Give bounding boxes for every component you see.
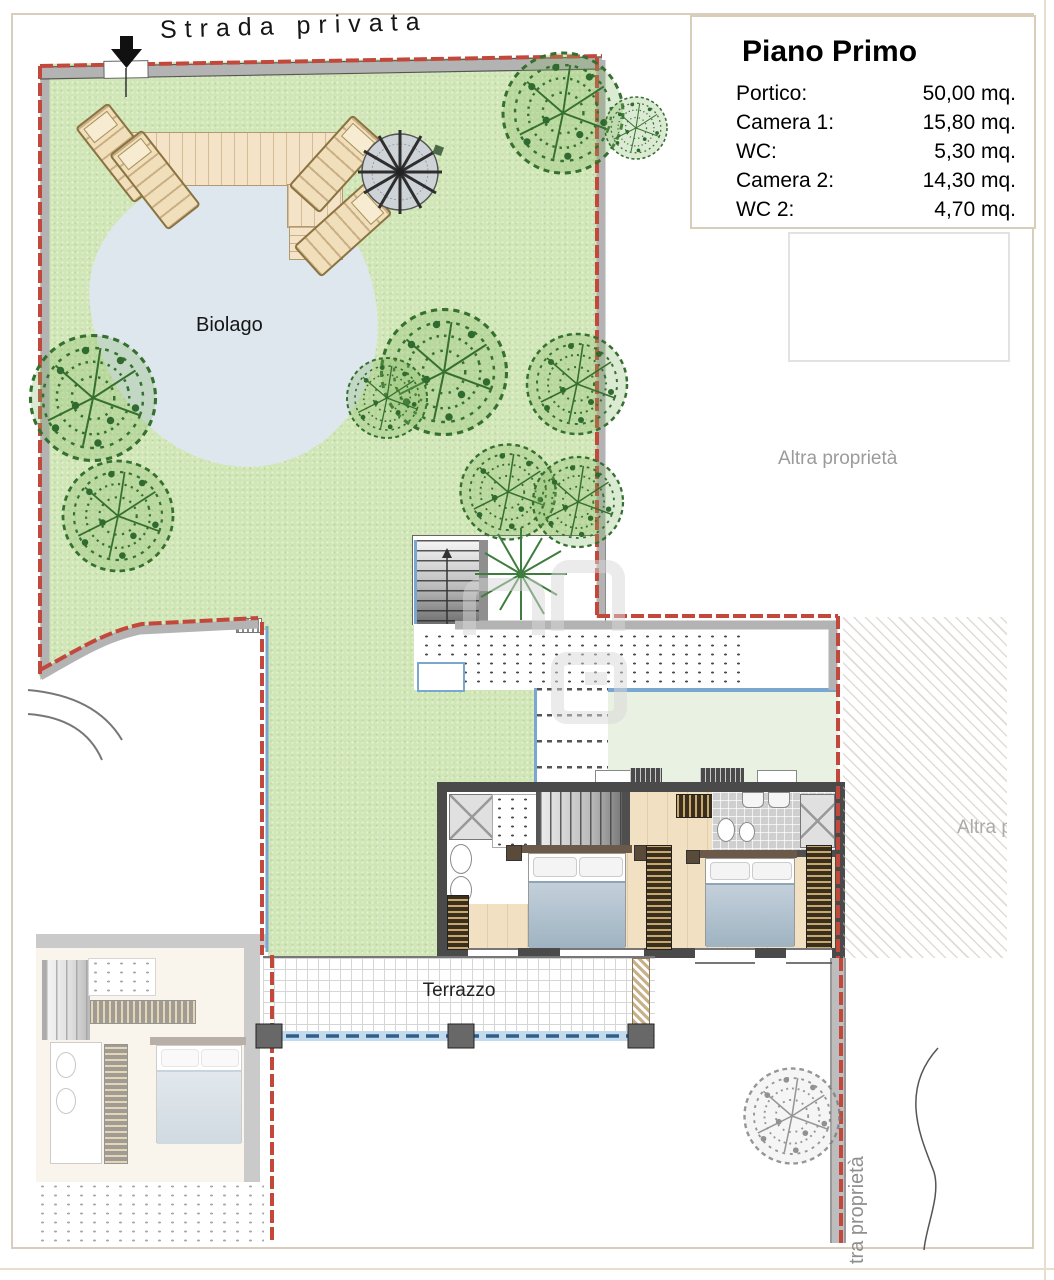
neighbor-unit — [30, 932, 270, 1245]
neighbor-wall — [36, 934, 266, 948]
legend-row: Camera 2: 14,30 mq. — [736, 166, 1016, 195]
pond-label: Biolago — [196, 314, 263, 337]
floor-plan-page: Altra proprietà — [0, 0, 1054, 1280]
page-frame-line — [1044, 0, 1046, 1280]
watermark-shape — [551, 652, 627, 724]
bidet-icon — [739, 822, 755, 842]
legend-row-label: Camera 1: — [736, 108, 834, 137]
stair-landing — [492, 794, 538, 848]
legend-row: WC: 5,30 mq. — [736, 137, 1016, 166]
bidet-icon — [56, 1088, 76, 1114]
bedroom-block — [437, 782, 845, 958]
duvet — [706, 883, 794, 947]
legend-row-label: Camera 2: — [736, 166, 834, 195]
watermark-shape — [585, 672, 607, 685]
wardrobe — [806, 845, 832, 950]
neighbor-stairs — [42, 960, 90, 1040]
other-property-hatch: Altra proprietà — [843, 617, 1007, 958]
legend-row: WC 2: 4,70 mq. — [736, 195, 1016, 224]
legend-row-label: WC 2: — [736, 195, 794, 224]
legend-row: Portico: 50,00 mq. — [736, 79, 1016, 108]
shower-icon — [800, 794, 835, 848]
wardrobe — [447, 895, 469, 950]
wardrobe — [676, 794, 716, 818]
pillow — [161, 1049, 199, 1067]
pillow — [752, 862, 792, 880]
bed-headboard — [520, 845, 632, 853]
pillow — [710, 862, 750, 880]
legend-row-value: 4,70 mq. — [934, 195, 1016, 224]
neighbor-landing — [88, 958, 156, 996]
legend-row-value: 15,80 mq. — [923, 108, 1016, 137]
shower-icon — [449, 794, 495, 840]
bed-headboard — [699, 850, 797, 858]
terrace-label: Terrazzo — [263, 980, 655, 1002]
sink-icon — [768, 792, 790, 808]
wardrobe — [104, 1044, 128, 1164]
toilet-icon — [717, 818, 735, 842]
other-property-label: Altra proprietà — [778, 448, 897, 470]
wardrobe — [90, 1000, 196, 1024]
window — [786, 948, 832, 964]
watermark-logo — [455, 560, 695, 720]
other-property-vertical-label: tra proprietà — [846, 1086, 882, 1264]
legend-row-value: 5,30 mq. — [934, 137, 1016, 166]
legend-row-label: WC: — [736, 137, 777, 166]
roof-vent — [700, 768, 744, 782]
gate-hatch — [236, 618, 262, 633]
pillow — [579, 857, 623, 877]
nightstand — [686, 850, 700, 864]
interior-wall — [622, 792, 630, 852]
legend-row-value: 50,00 mq. — [923, 79, 1016, 108]
pillow — [533, 857, 577, 877]
legend-row: Camera 1: 15,80 mq. — [736, 108, 1016, 137]
watermark-shape — [551, 560, 625, 631]
toilet-icon — [56, 1052, 76, 1078]
bed-camera-1 — [528, 853, 626, 947]
other-property-outline — [788, 232, 1010, 362]
legend-box: Piano Primo Portico: 50,00 mq. Camera 1:… — [690, 15, 1036, 229]
sink-icon — [450, 844, 472, 874]
other-property-label: Altra proprietà — [957, 817, 1007, 839]
legend-title: Piano Primo — [742, 35, 1034, 69]
duvet — [157, 1070, 241, 1144]
duvet — [529, 881, 625, 948]
nightstand — [506, 845, 522, 861]
wardrobe — [646, 845, 672, 950]
bed-camera-2 — [705, 858, 795, 946]
sink-icon — [742, 792, 764, 808]
legend-rows: Portico: 50,00 mq. Camera 1: 15,80 mq. W… — [736, 79, 1016, 224]
bed-headboard — [150, 1037, 246, 1045]
legend-row-label: Portico: — [736, 79, 807, 108]
roof-vent — [630, 768, 662, 782]
indoor-stairs — [536, 792, 626, 850]
window — [695, 948, 755, 964]
watermark-shape — [463, 578, 545, 635]
pillow — [201, 1049, 239, 1067]
neighbor-paving — [36, 1182, 264, 1245]
legend-row-value: 14,30 mq. — [923, 166, 1016, 195]
neighbor-bed — [156, 1045, 242, 1143]
page-frame-line — [0, 1268, 1054, 1270]
